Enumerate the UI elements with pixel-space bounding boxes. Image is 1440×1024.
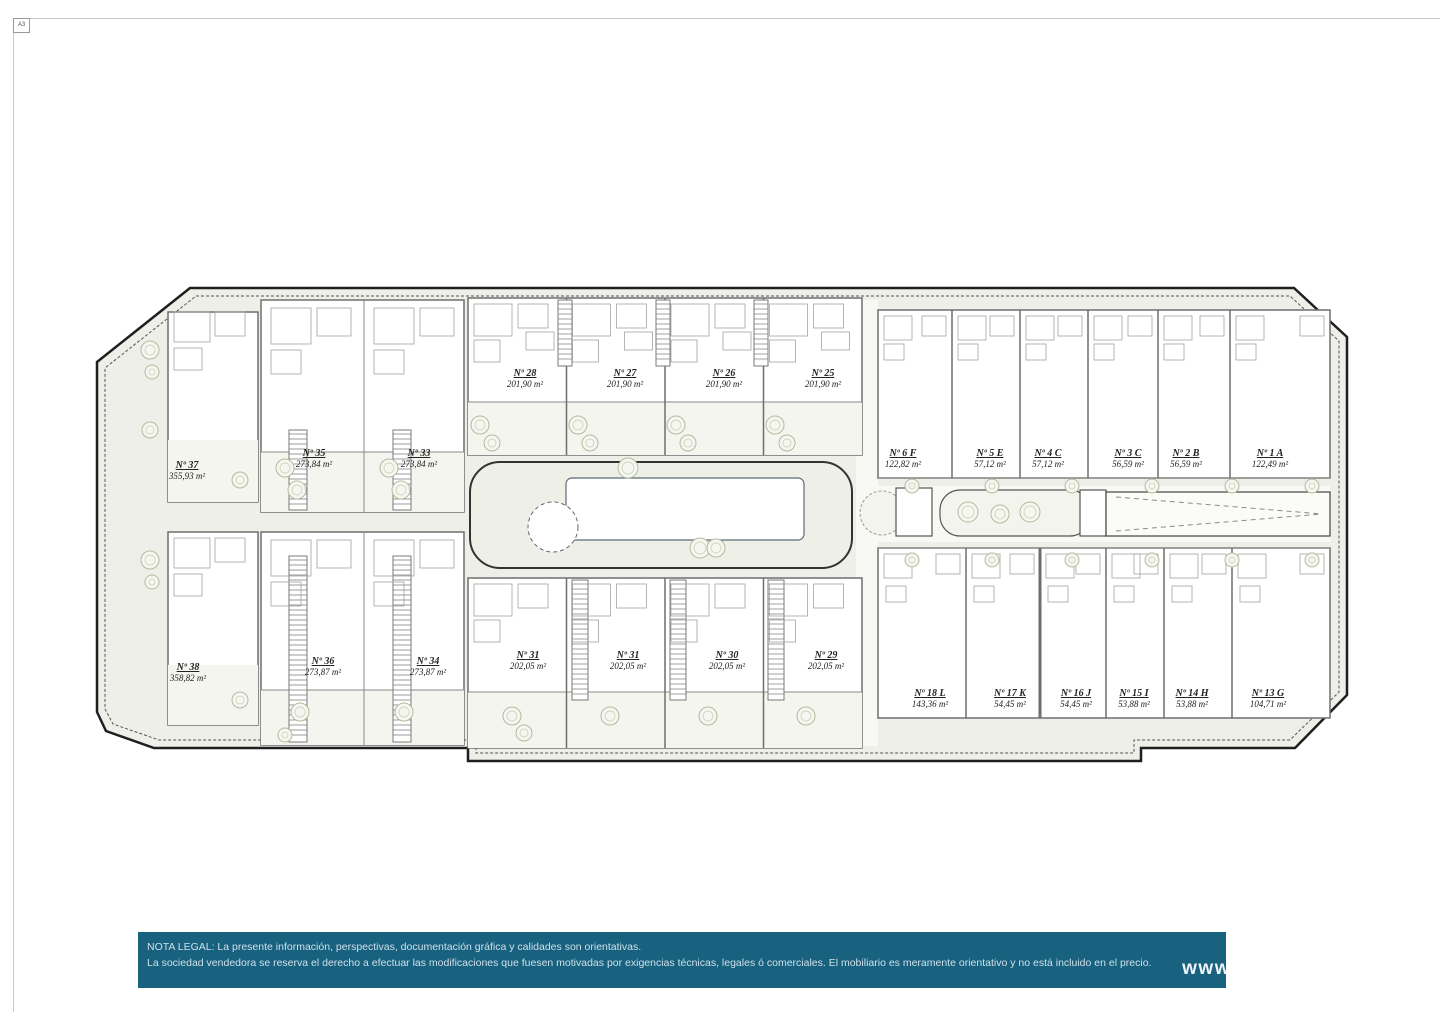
gatehouse-2 bbox=[1080, 490, 1106, 536]
legal-line-2: La sociedad vendedora se reserva el dere… bbox=[147, 955, 1166, 971]
round-pool bbox=[528, 502, 578, 552]
townhouse-block-13-18 bbox=[878, 548, 1330, 718]
legal-line-1: NOTA LEGAL: La presente información, per… bbox=[147, 939, 1166, 955]
legal-footer: NOTA LEGAL: La presente información, per… bbox=[138, 932, 1226, 988]
site-plan-drawing bbox=[0, 0, 1440, 1024]
driveway bbox=[1106, 492, 1330, 536]
pool bbox=[566, 478, 804, 540]
legal-text: NOTA LEGAL: La presente información, per… bbox=[147, 939, 1166, 971]
website-text: www bbox=[1182, 958, 1226, 980]
gatehouse-1 bbox=[896, 488, 932, 536]
